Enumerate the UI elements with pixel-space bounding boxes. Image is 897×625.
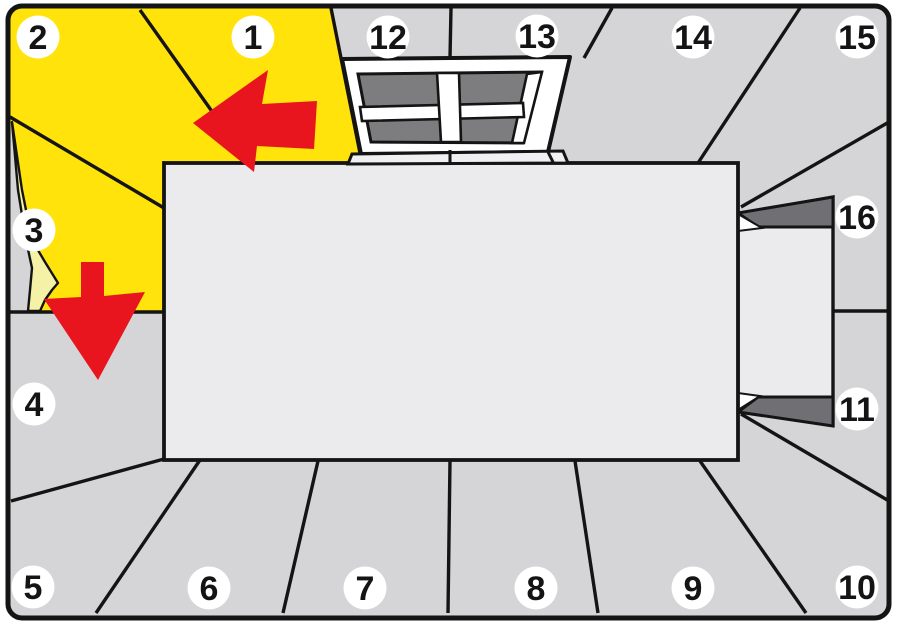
badge-10: 10 [836,566,879,609]
floor [164,163,738,460]
seam-12-13 [450,8,451,58]
badge-12: 12 [367,16,410,59]
badge-4: 4 [13,383,56,426]
badge-number: 15 [838,19,876,57]
diagram-content [8,6,890,618]
badge-number: 11 [839,391,875,429]
badge-number: 12 [369,19,407,57]
door-passage [738,197,833,425]
badge-number: 1 [244,19,263,57]
diagram-svg: 12345678910111213141516 [0,0,897,625]
badge-8: 8 [515,567,558,610]
badge-3: 3 [13,209,56,252]
badge-16: 16 [836,196,879,239]
badge-5: 5 [12,566,55,609]
badge-13: 13 [516,15,559,58]
badge-9: 9 [672,567,715,610]
wallpapering-sequence-diagram: 12345678910111213141516 [0,0,897,625]
badge-11: 11 [836,388,879,431]
badge-number: 16 [838,199,876,237]
badge-number: 4 [25,386,44,424]
badge-1: 1 [232,16,275,59]
badge-number: 3 [25,212,44,250]
badge-number: 13 [518,18,556,56]
badge-2: 2 [17,16,60,59]
badge-7: 7 [344,567,387,610]
badge-6: 6 [188,567,231,610]
badge-number: 6 [200,570,219,608]
badge-number: 9 [684,570,703,608]
window-sill [348,151,568,164]
badge-number: 8 [527,570,546,608]
badge-number: 7 [356,570,375,608]
badge-15: 15 [836,16,879,59]
badge-number: 10 [838,569,876,607]
badge-number: 2 [29,19,48,57]
badge-14: 14 [672,16,715,59]
seam-7-8 [448,460,450,613]
window-mullion-vertical [437,73,461,142]
badge-number: 5 [24,569,43,607]
badge-number: 14 [674,19,712,57]
